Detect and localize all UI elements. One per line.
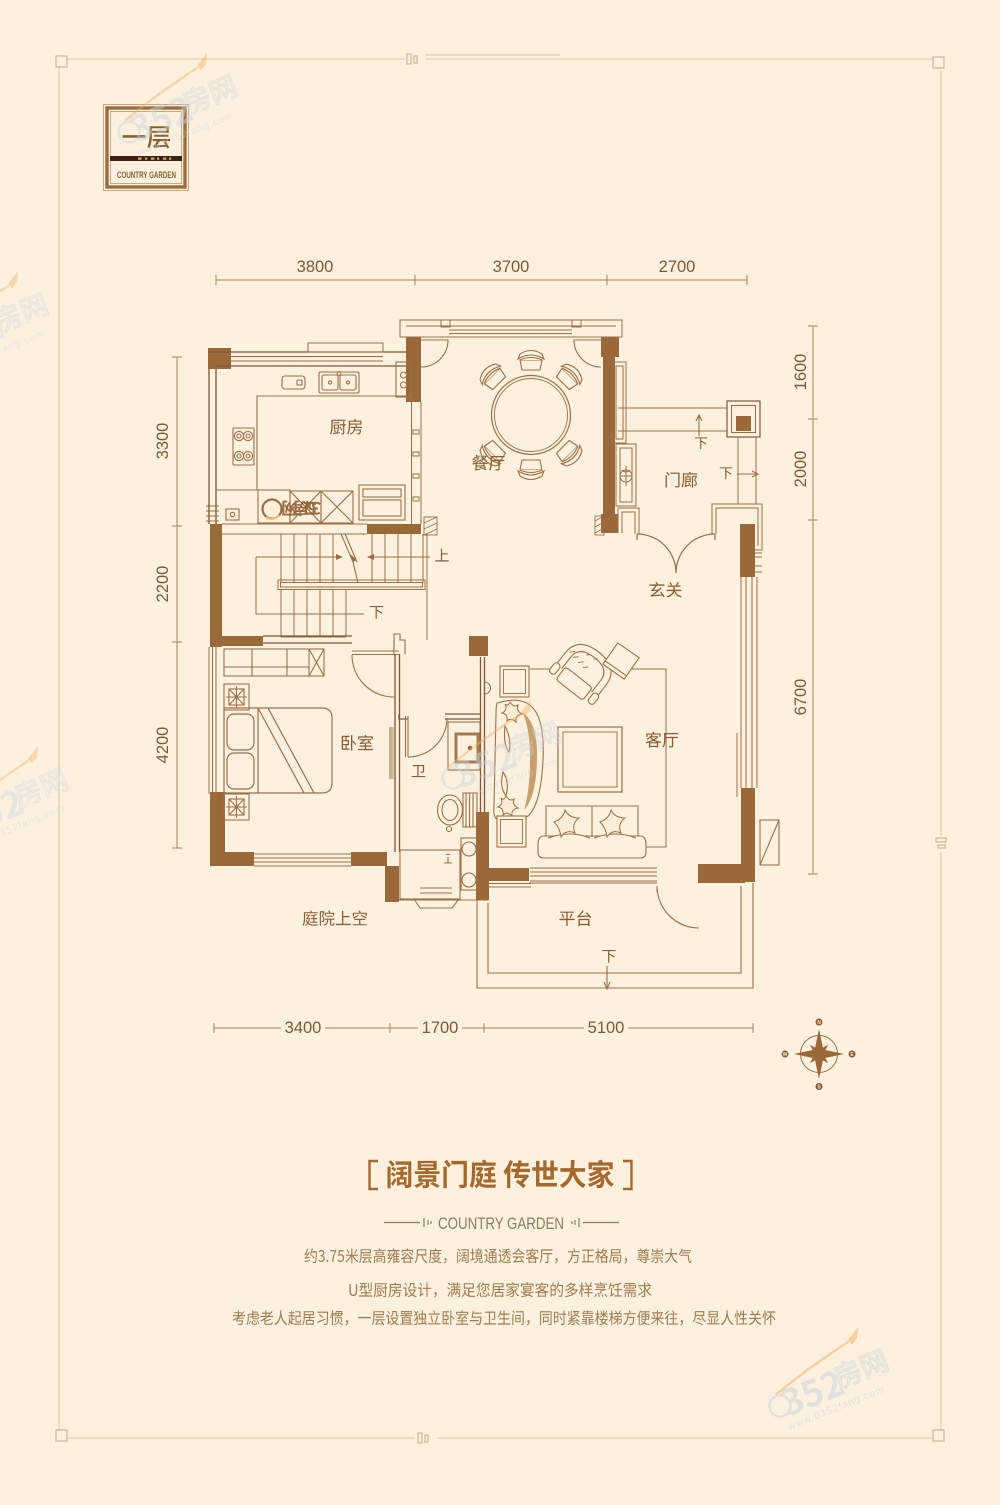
svg-text:1600: 1600	[792, 354, 810, 391]
svg-text:4200: 4200	[154, 727, 172, 764]
svg-text:2200: 2200	[154, 566, 172, 603]
svg-text:6700: 6700	[792, 679, 810, 716]
svg-text:3400: 3400	[285, 1019, 322, 1037]
svg-text:COUNTRY GARDEN: COUNTRY GARDEN	[117, 170, 176, 181]
svg-text:2000: 2000	[792, 451, 810, 488]
svg-text:1700: 1700	[422, 1019, 459, 1037]
svg-text:COUNTRY GARDEN: COUNTRY GARDEN	[438, 1214, 564, 1233]
svg-text:3300: 3300	[154, 423, 172, 460]
svg-text:W: W	[783, 1052, 788, 1058]
svg-text:3800: 3800	[297, 258, 334, 276]
svg-text:N: N	[817, 1020, 821, 1026]
svg-text:3700: 3700	[493, 258, 530, 276]
svg-text:5100: 5100	[588, 1019, 625, 1037]
svg-text:2700: 2700	[659, 258, 696, 276]
